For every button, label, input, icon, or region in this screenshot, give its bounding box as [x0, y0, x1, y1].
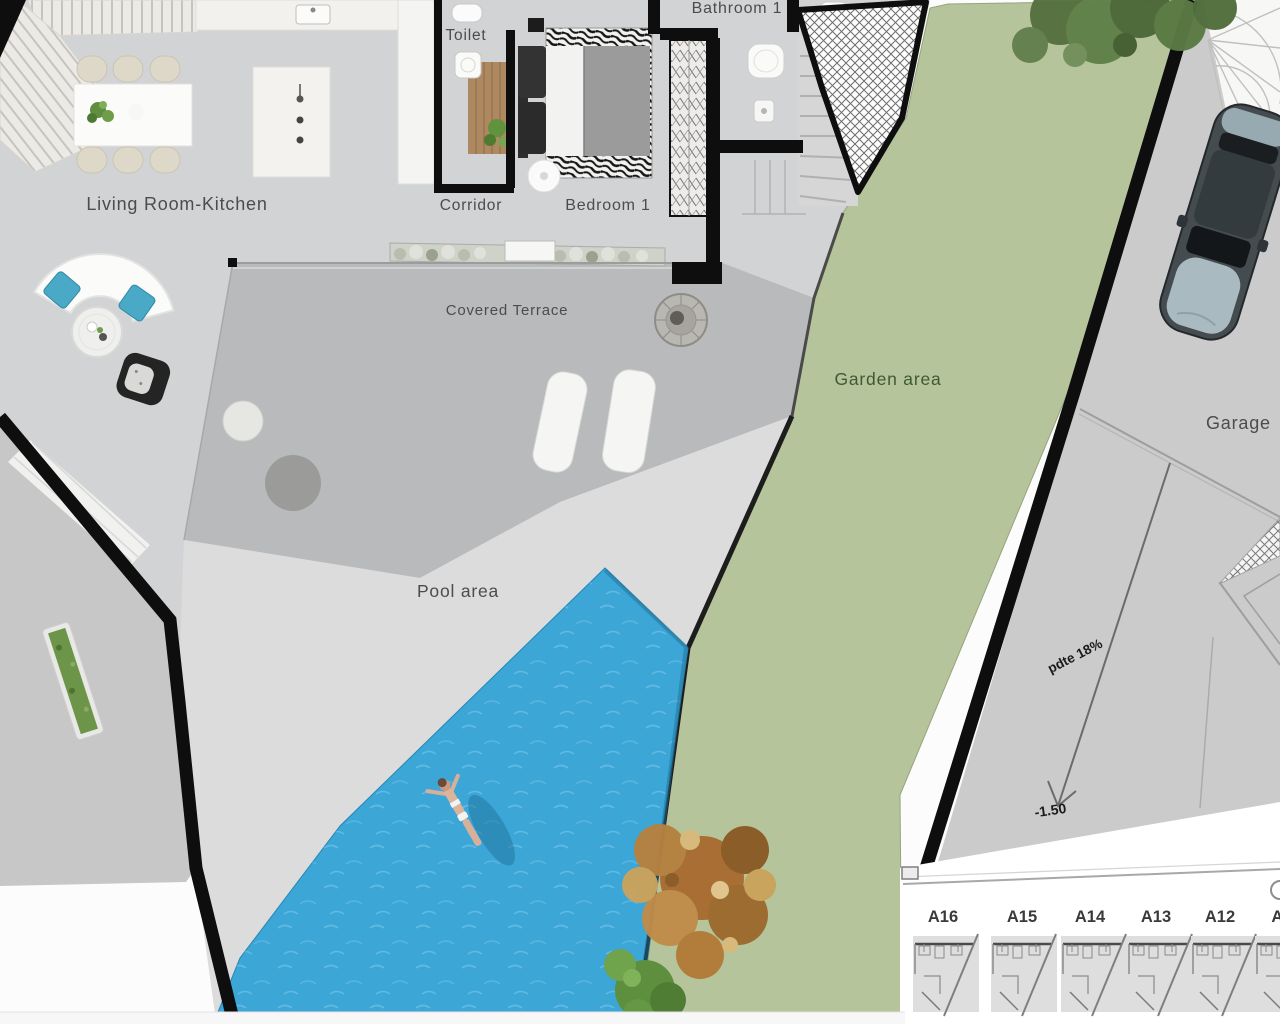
garden-area-label: Garden area [834, 369, 941, 389]
bed-spread [584, 46, 650, 156]
bathtub [748, 44, 784, 78]
pouf-white [223, 401, 263, 441]
wall [787, 0, 799, 32]
toilet-fixture [452, 4, 482, 22]
unit-sketch [913, 934, 979, 1016]
wall-stub-white [398, 0, 434, 184]
bottom-strip [0, 1012, 905, 1024]
wall [717, 140, 803, 153]
wall [434, 184, 514, 193]
wall [648, 0, 660, 34]
wall [706, 38, 720, 284]
unit-label-a15: A15 [1007, 908, 1037, 926]
floor-plan-page: A16 A15 A14 A13 A12 A11 Living Room-Kitc… [0, 0, 1280, 1024]
bed-sheets [546, 46, 584, 156]
wall-post [228, 258, 237, 267]
toilet-sink [455, 52, 481, 78]
toilet-label: Toilet [446, 27, 487, 44]
bedside-table [528, 18, 544, 32]
living-room-label: Living Room-Kitchen [86, 194, 267, 214]
dining-chair [113, 56, 143, 82]
kitchen-island [253, 67, 330, 177]
terrace-counter [505, 241, 555, 261]
bed-pillow [518, 102, 546, 154]
unit-label-a14: A14 [1075, 908, 1106, 926]
dining-chair [150, 56, 180, 82]
unit-label-a16: A16 [928, 908, 958, 926]
bedroom-1-label: Bedroom 1 [565, 197, 650, 214]
bed-pillow [518, 46, 546, 98]
garage-label: Garage [1206, 413, 1271, 433]
pouf-gray [265, 455, 321, 511]
wall [506, 30, 515, 188]
unit-label-a13: A13 [1141, 908, 1171, 926]
band-corner-mark [902, 867, 918, 879]
sink-faucet [311, 8, 316, 13]
dining-set [74, 56, 192, 173]
table-plate [128, 104, 144, 120]
dining-chair [77, 56, 107, 82]
unit-label-a11: A11 [1271, 908, 1280, 926]
dining-chair [113, 147, 143, 173]
wall [434, 0, 442, 186]
corridor-label: Corridor [440, 197, 502, 214]
unit-sketch [991, 934, 1057, 1016]
dining-chair [77, 147, 107, 173]
unit-sketch [1255, 934, 1280, 1016]
dining-chair [150, 147, 180, 173]
bathroom-label: Bathroom 1 [692, 0, 783, 17]
band-circle-mark [1271, 881, 1280, 899]
unit-sketch [1061, 934, 1127, 1016]
unit-sketch [1191, 934, 1257, 1016]
wall [672, 262, 722, 284]
pool-area-label: Pool area [417, 581, 499, 601]
floor-plan: A16 A15 A14 A13 A12 A11 Living Room-Kitc… [0, 0, 1280, 1024]
unit-sketch [1127, 934, 1193, 1016]
unit-label-a12: A12 [1205, 908, 1235, 926]
covered-terrace-label: Covered Terrace [446, 302, 569, 319]
wicker-chair [655, 294, 707, 346]
